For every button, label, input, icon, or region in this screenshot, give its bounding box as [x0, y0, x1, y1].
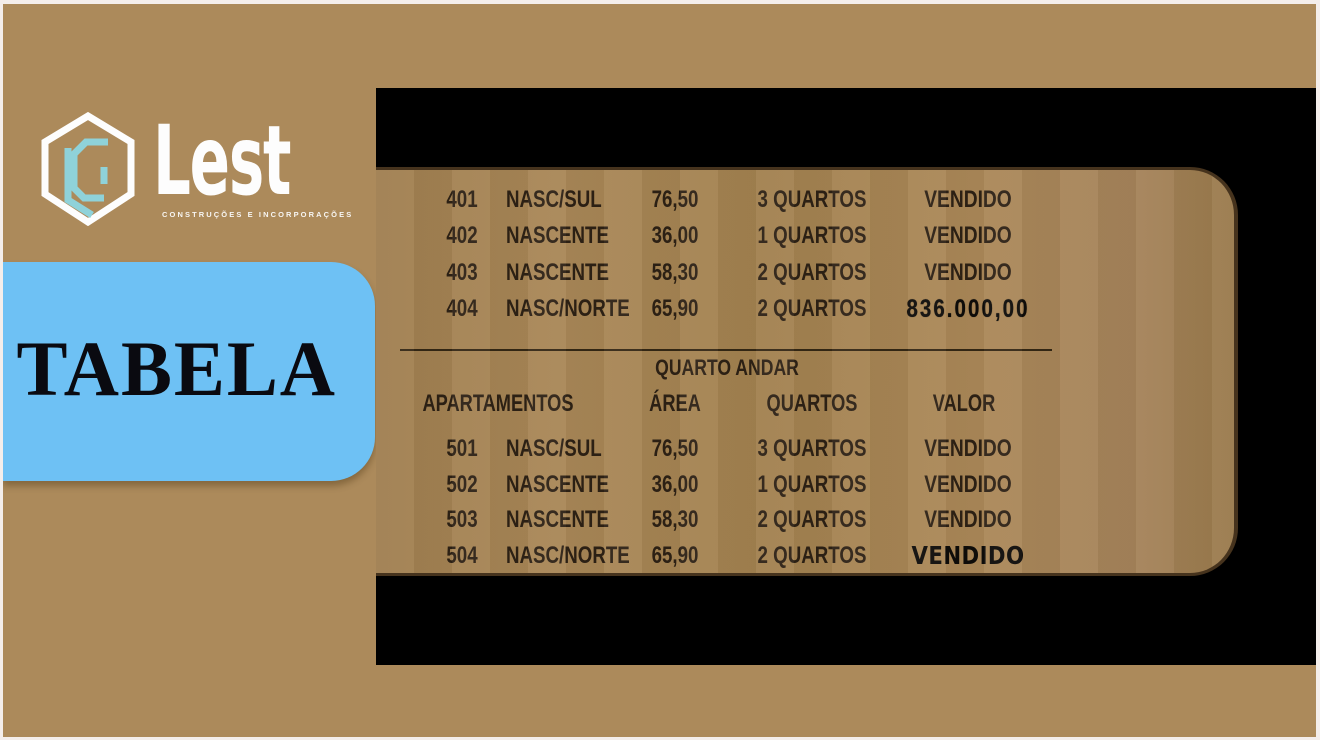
- header-apartamentos: APARTAMENTOS: [423, 390, 574, 417]
- area-cell: 58,30: [652, 255, 699, 291]
- quartos-cell: 3 QUARTOS: [758, 182, 867, 218]
- valor-cell: VENDIDO: [924, 502, 1011, 538]
- area-cell: 58,30: [652, 502, 699, 538]
- quartos-cell: 1 QUARTOS: [758, 467, 867, 503]
- table-row: 504NASC/NORTE65,902 QUARTOSVENDIDO: [376, 538, 1234, 574]
- valor-cell: VENDIDO: [924, 431, 1011, 467]
- lower-floor-rows: 501NASC/SUL76,503 QUARTOSVENDIDO502NASCE…: [376, 431, 1234, 574]
- header-quartos: QUARTOS: [767, 390, 858, 417]
- table-row: 501NASC/SUL76,503 QUARTOSVENDIDO: [376, 431, 1234, 467]
- table-row: 502NASCENTE36,001 QUARTOSVENDIDO: [376, 467, 1234, 503]
- area-cell: 76,50: [652, 182, 699, 218]
- quartos-cell: 2 QUARTOS: [758, 538, 867, 574]
- orientation-cell: NASC/SUL: [506, 431, 602, 467]
- area-cell: 76,50: [652, 431, 699, 467]
- valor-cell: VENDIDO: [924, 467, 1011, 503]
- quartos-cell: 1 QUARTOS: [758, 218, 867, 254]
- apt-cell: 502: [446, 467, 477, 503]
- apt-cell: 504: [446, 538, 477, 574]
- table-row: 402NASCENTE36,001 QUARTOSVENDIDO: [376, 218, 1234, 254]
- slide-canvas: Lest CONSTRUÇÕES E INCORPORAÇÕES TABELA …: [3, 4, 1316, 737]
- orientation-cell: NASC/NORTE: [506, 291, 630, 327]
- area-cell: 65,90: [652, 291, 699, 327]
- column-headers: APARTAMENTOS ÁREA QUARTOS VALOR: [376, 390, 1234, 417]
- apt-cell: 404: [446, 291, 477, 327]
- header-area: ÁREA: [649, 390, 701, 417]
- orientation-cell: NASC/SUL: [506, 182, 602, 218]
- apt-cell: 501: [446, 431, 477, 467]
- valor-cell: VENDIDO: [924, 182, 1011, 218]
- valor-cell: 836.000,00: [906, 291, 1029, 327]
- upper-floor-rows: 401NASC/SUL76,503 QUARTOSVENDIDO402NASCE…: [376, 182, 1234, 327]
- orientation-cell: NASCENTE: [506, 255, 609, 291]
- table-row: 401NASC/SUL76,503 QUARTOSVENDIDO: [376, 182, 1234, 218]
- hexagon-lc-monogram-icon: [38, 112, 138, 226]
- quartos-cell: 3 QUARTOS: [758, 431, 867, 467]
- apt-cell: 503: [446, 502, 477, 538]
- area-cell: 36,00: [652, 467, 699, 503]
- area-cell: 36,00: [652, 218, 699, 254]
- table-row: 503NASCENTE58,302 QUARTOSVENDIDO: [376, 502, 1234, 538]
- valor-cell: VENDIDO: [912, 538, 1025, 574]
- quartos-cell: 2 QUARTOS: [758, 255, 867, 291]
- slide-title-box: TABELA: [3, 262, 375, 481]
- apt-cell: 402: [446, 218, 477, 254]
- quartos-cell: 2 QUARTOS: [758, 291, 867, 327]
- brand-name: Lest: [153, 118, 290, 204]
- section-divider: [400, 349, 1052, 351]
- table-row: 404NASC/NORTE65,902 QUARTOS836.000,00: [376, 291, 1234, 327]
- quartos-cell: 2 QUARTOS: [758, 502, 867, 538]
- valor-cell: VENDIDO: [924, 255, 1011, 291]
- area-cell: 65,90: [652, 538, 699, 574]
- apt-cell: 403: [446, 255, 477, 291]
- floor-label: QUARTO ANDAR: [655, 356, 799, 380]
- apt-cell: 401: [446, 182, 477, 218]
- valor-cell: VENDIDO: [924, 218, 1011, 254]
- brand-tagline: CONSTRUÇÕES E INCORPORAÇÕES: [162, 210, 353, 219]
- orientation-cell: NASCENTE: [506, 467, 609, 503]
- orientation-cell: NASC/NORTE: [506, 538, 630, 574]
- header-valor: VALOR: [933, 390, 995, 417]
- price-table-card: 401NASC/SUL76,503 QUARTOSVENDIDO402NASCE…: [376, 167, 1238, 576]
- orientation-cell: NASCENTE: [506, 218, 609, 254]
- table-row: 403NASCENTE58,302 QUARTOSVENDIDO: [376, 255, 1234, 291]
- slide-title: TABELA: [16, 324, 362, 420]
- orientation-cell: NASCENTE: [506, 502, 609, 538]
